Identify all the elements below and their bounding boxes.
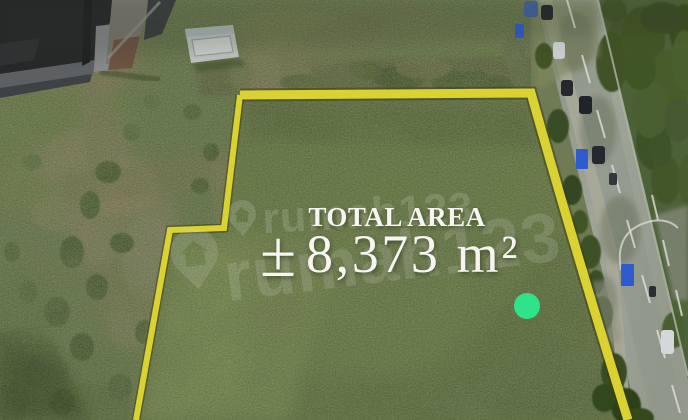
svg-text:±: ± [260, 218, 296, 291]
svg-text:8,373 m²: 8,373 m² [306, 224, 520, 284]
